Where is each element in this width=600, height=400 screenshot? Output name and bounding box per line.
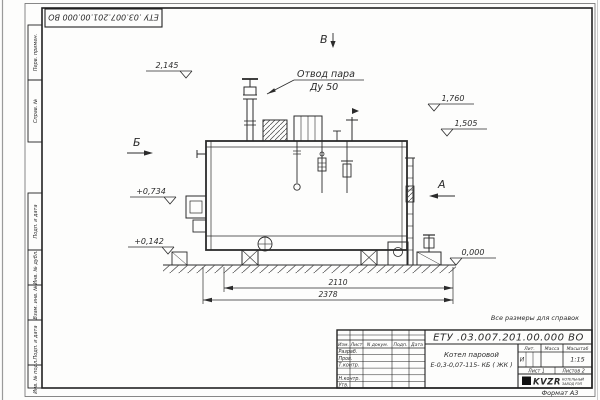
view-label-left: Б bbox=[133, 136, 141, 149]
burner-assembly bbox=[172, 150, 206, 265]
kvzr-caption-line1: КОТЕЛЬНЫЙ bbox=[562, 377, 584, 382]
product-name-line2: Е-0,3-0,07-115- КБ ( ЖК ) bbox=[430, 362, 512, 369]
stamp-podp-data-1: Подп. и дата bbox=[33, 204, 39, 238]
margin-stamps: Перв. примен. Справ. № Подп. и дата Инв.… bbox=[28, 25, 42, 394]
dimension-outer: 2378 bbox=[318, 290, 337, 299]
stamp-podp-data-2: Подп. и дата bbox=[33, 325, 39, 359]
col-data: Дата bbox=[410, 342, 423, 348]
elevation-right-lower: 1,505 bbox=[455, 119, 478, 128]
stamp-inv-dubl: Инв. № дубл. bbox=[33, 250, 39, 284]
elevation-top: 2,145 bbox=[156, 61, 179, 70]
blueprint-sheet: ЕТУ .03.007.201.00.000 ВО Перв. примен. … bbox=[0, 0, 600, 400]
product-name-line1: Котел паровой bbox=[444, 351, 499, 359]
right-ladder bbox=[405, 158, 415, 265]
mass-header: Масса bbox=[545, 346, 560, 352]
boiler-body bbox=[206, 141, 407, 250]
steam-outlet-valve bbox=[242, 79, 258, 141]
manhole bbox=[258, 237, 272, 251]
format-label: Формат А3 bbox=[541, 389, 578, 397]
view-labels: В Б А bbox=[127, 33, 455, 199]
kvzr-logo-text: KVZR bbox=[533, 378, 561, 388]
stamp-perv-primen: Перв. примен. bbox=[33, 34, 39, 72]
scale-value: 1:15 bbox=[570, 356, 585, 364]
elevation-ground: 0,000 bbox=[462, 248, 485, 257]
ground-hatching bbox=[163, 265, 456, 273]
topleft-docnumber-box: ЕТУ .03.007.201.00.000 ВО bbox=[45, 9, 162, 27]
view-label-top: В bbox=[320, 33, 328, 46]
callout-line1: Отвод пара bbox=[297, 69, 355, 80]
scale-header: Масштаб bbox=[567, 346, 589, 352]
col-doc: N докум. bbox=[367, 342, 388, 348]
titleblock-docnumber: ЕТУ .03.007.201.00.000 ВО bbox=[433, 333, 584, 344]
col-izm: Изм. bbox=[338, 342, 349, 348]
view-label-right: А bbox=[437, 178, 446, 191]
sheet-number: Лист 1 bbox=[527, 368, 545, 374]
stamp-vzam-inv: Взам. инв. № bbox=[33, 286, 39, 320]
kvzr-logo: KVZR КОТЕЛЬНЫЙ ЗАВОД РЭП bbox=[522, 377, 584, 388]
row-utv: Утв. bbox=[339, 383, 349, 389]
boiler-drawing-canvas: ЕТУ .03.007.201.00.000 ВО Перв. примен. … bbox=[0, 0, 600, 400]
col-list: Лист bbox=[350, 342, 363, 348]
col-podp: Подп. bbox=[394, 342, 408, 348]
row-prov: Пров. bbox=[339, 356, 353, 362]
elevation-left-upper: +0,734 bbox=[136, 187, 166, 196]
reference-note: Все размеры для справок bbox=[491, 314, 579, 322]
sheets-total: Листов 2 bbox=[561, 368, 585, 374]
elevation-left-lower: +0,142 bbox=[134, 237, 164, 246]
row-razrab: Разраб. bbox=[339, 349, 358, 355]
front-gauges bbox=[293, 141, 353, 193]
stamp-inv-podl: Инв. № подл. bbox=[33, 359, 39, 394]
stamp-sprav-no: Справ. № bbox=[33, 99, 39, 123]
support-feet bbox=[242, 250, 377, 265]
dimension-inner: 2110 bbox=[328, 278, 347, 287]
elevation-right-upper: 1,760 bbox=[442, 94, 465, 103]
roof-fittings bbox=[263, 108, 359, 141]
callout-line2: Ду 50 bbox=[309, 82, 338, 93]
topleft-docnumber: ЕТУ .03.007.201.00.000 ВО bbox=[48, 13, 159, 22]
steam-outlet-callout: Отвод пара Ду 50 bbox=[267, 69, 364, 94]
kvzr-caption-line2: ЗАВОД РЭП bbox=[562, 382, 583, 386]
row-nkontr: Н.контр. bbox=[339, 376, 360, 382]
lit-value: И bbox=[520, 357, 525, 364]
lit-header: Лит. bbox=[523, 346, 535, 352]
row-tkontr: Т.контр. bbox=[339, 363, 360, 369]
